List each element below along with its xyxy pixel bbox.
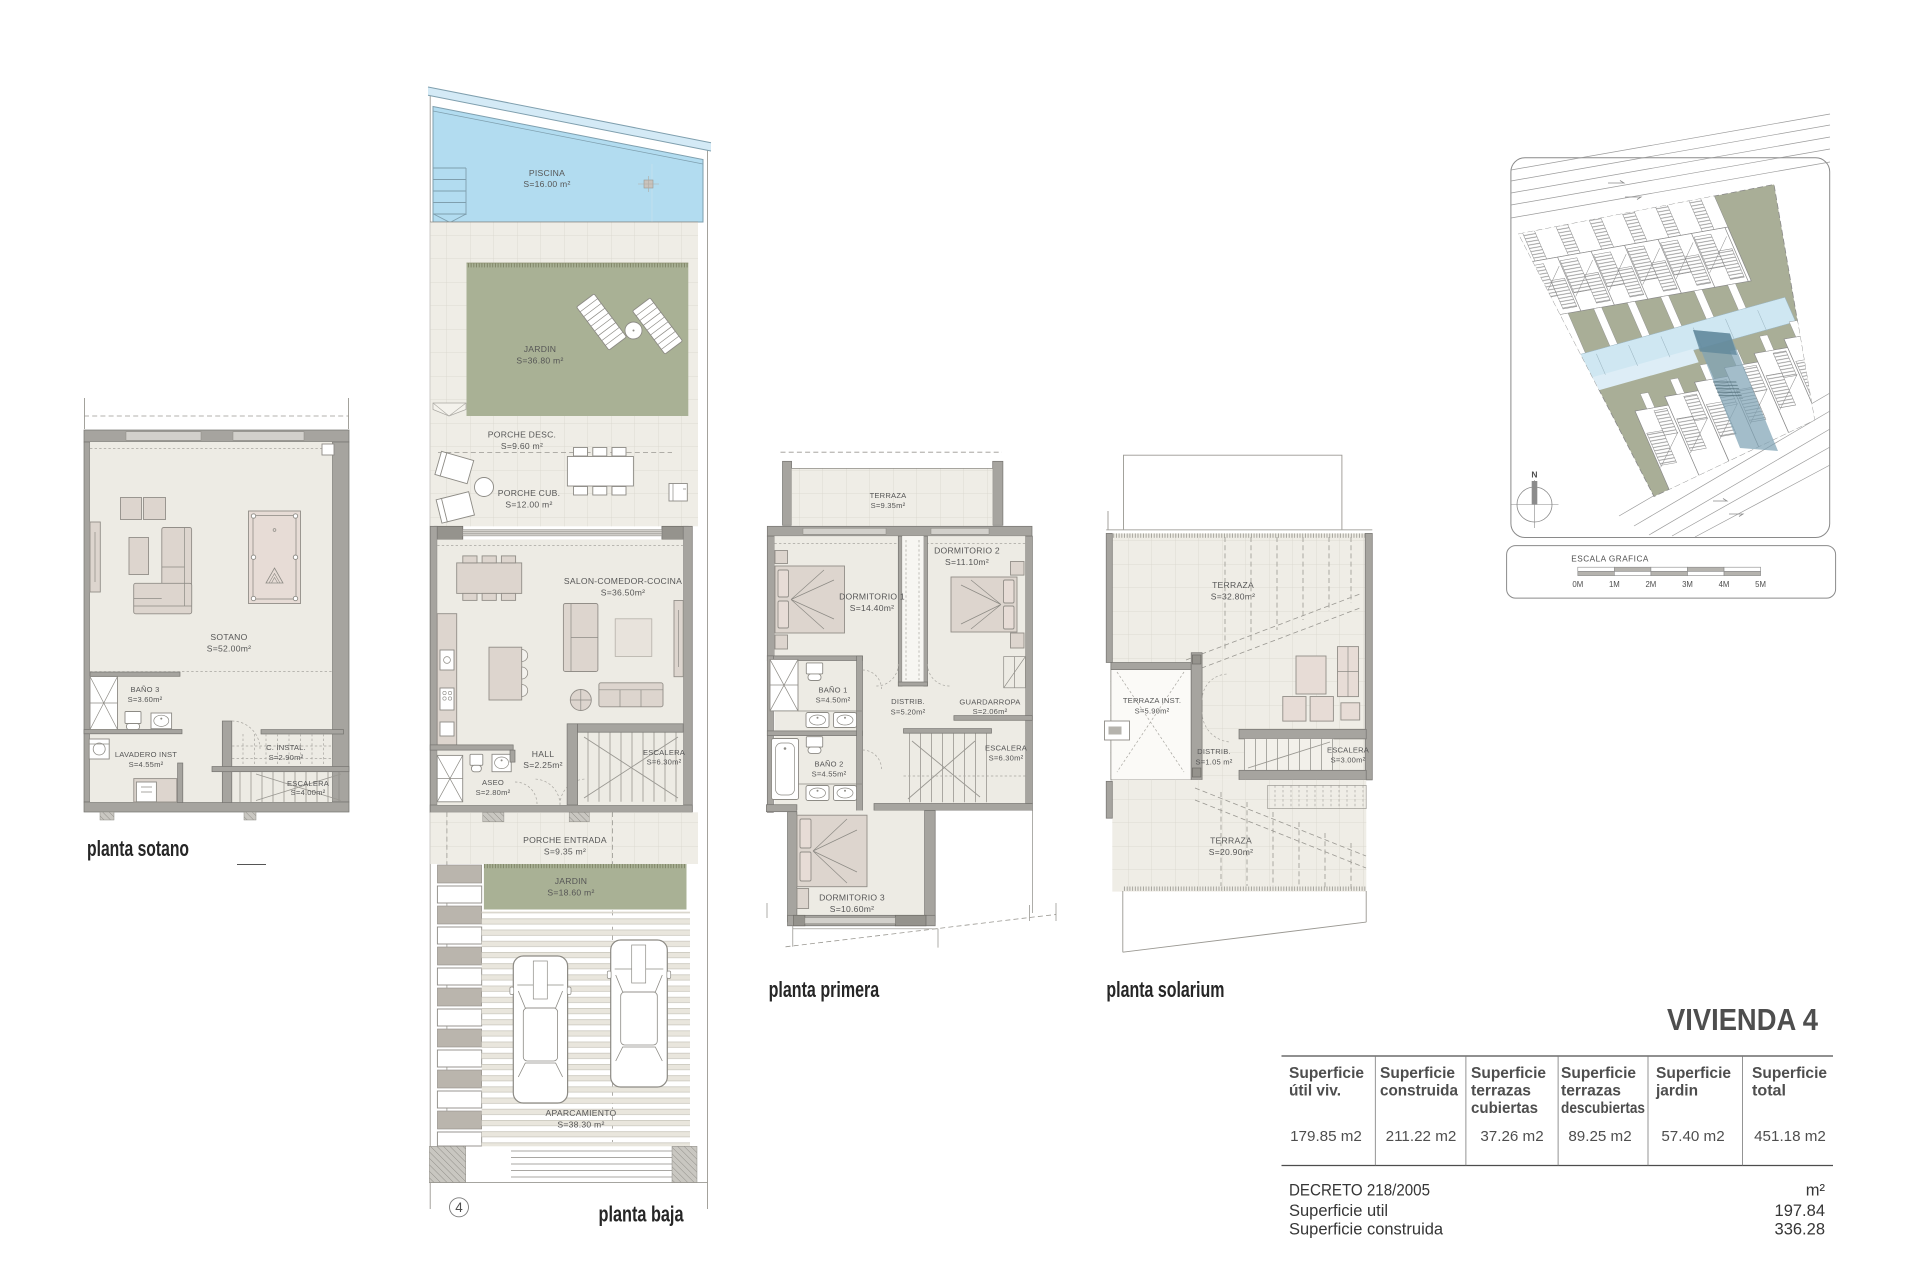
svg-text:S=20.90m²: S=20.90m² xyxy=(1209,847,1254,857)
svg-text:ESCALERA: ESCALERA xyxy=(287,779,330,788)
svg-text:BAÑO 1: BAÑO 1 xyxy=(818,686,847,695)
svg-text:S=4.55m²: S=4.55m² xyxy=(129,760,164,769)
svg-text:Superficie: Superficie xyxy=(1471,1065,1546,1082)
svg-text:1M: 1M xyxy=(1609,580,1620,589)
svg-text:S=9.35 m²: S=9.35 m² xyxy=(544,847,586,857)
svg-text:197.84: 197.84 xyxy=(1775,1202,1825,1220)
svg-text:TERRAZA: TERRAZA xyxy=(870,491,908,500)
svg-text:S=4.55m²: S=4.55m² xyxy=(812,770,847,779)
svg-text:451.18 m2: 451.18 m2 xyxy=(1754,1128,1826,1145)
svg-text:cubiertas: cubiertas xyxy=(1471,1100,1538,1117)
svg-text:Superficie: Superficie xyxy=(1752,1065,1827,1082)
svg-text:S=38.30 m²: S=38.30 m² xyxy=(557,1120,604,1130)
svg-text:TERRAZA: TERRAZA xyxy=(1210,836,1252,846)
svg-text:planta sotano: planta sotano xyxy=(87,836,189,861)
svg-text:Superficie: Superficie xyxy=(1656,1065,1731,1082)
svg-text:Superficie: Superficie xyxy=(1380,1065,1455,1082)
svg-text:planta baja: planta baja xyxy=(599,1202,685,1227)
svg-text:S=5.20m²: S=5.20m² xyxy=(891,708,926,717)
svg-text:37.26 m2: 37.26 m2 xyxy=(1480,1128,1543,1145)
svg-text:PORCHE ENTRADA: PORCHE ENTRADA xyxy=(523,835,607,845)
svg-text:S=2.25m²: S=2.25m² xyxy=(523,760,563,770)
svg-text:S=36.80 m²: S=36.80 m² xyxy=(516,356,563,366)
svg-text:SALON-COMEDOR-COCINA: SALON-COMEDOR-COCINA xyxy=(564,576,682,586)
svg-text:179.85 m2: 179.85 m2 xyxy=(1290,1128,1362,1145)
svg-text:S=3.60m²: S=3.60m² xyxy=(128,695,163,704)
svg-text:S=3.00m²: S=3.00m² xyxy=(1331,756,1366,765)
svg-text:TERRAZA INST.: TERRAZA INST. xyxy=(1123,696,1181,705)
svg-text:terrazas: terrazas xyxy=(1471,1083,1531,1100)
svg-text:S=10.60m²: S=10.60m² xyxy=(830,904,875,914)
svg-text:S=4.00m²: S=4.00m² xyxy=(291,788,326,797)
svg-text:ESCALERA: ESCALERA xyxy=(643,748,686,757)
svg-text:VIVIENDA 4: VIVIENDA 4 xyxy=(1667,1002,1819,1037)
svg-text:ASEO: ASEO xyxy=(482,778,504,787)
svg-text:Superficie: Superficie xyxy=(1561,1065,1636,1082)
svg-text:JARDIN: JARDIN xyxy=(524,344,557,354)
svg-text:PORCHE CUB.: PORCHE CUB. xyxy=(498,488,560,498)
svg-text:planta primera: planta primera xyxy=(769,977,880,1002)
svg-text:SOTANO: SOTANO xyxy=(210,632,247,642)
svg-text:89.25 m2: 89.25 m2 xyxy=(1568,1128,1631,1145)
svg-text:DORMITORIO 1: DORMITORIO 1 xyxy=(839,592,905,602)
svg-text:4: 4 xyxy=(455,1200,463,1215)
svg-text:S=5.90m²: S=5.90m² xyxy=(1135,707,1170,716)
svg-text:construida: construida xyxy=(1380,1083,1458,1100)
svg-text:TERRAZA: TERRAZA xyxy=(1212,580,1254,590)
svg-text:total: total xyxy=(1752,1083,1786,1100)
svg-text:LAVADERO INST: LAVADERO INST xyxy=(115,750,177,759)
svg-text:S=12.00 m²: S=12.00 m² xyxy=(505,500,552,510)
svg-text:DORMITORIO 2: DORMITORIO 2 xyxy=(934,546,1000,556)
svg-text:S=2.80m²: S=2.80m² xyxy=(476,788,511,797)
svg-text:S=36.50m²: S=36.50m² xyxy=(601,588,646,598)
svg-text:4M: 4M xyxy=(1719,580,1730,589)
svg-text:S=1.05 m²: S=1.05 m² xyxy=(1195,758,1232,767)
svg-text:Superficie util: Superficie util xyxy=(1289,1202,1388,1220)
svg-text:S=6.30m²: S=6.30m² xyxy=(647,758,682,767)
svg-text:3M: 3M xyxy=(1682,580,1693,589)
svg-text:PORCHE DESC.: PORCHE DESC. xyxy=(488,430,556,440)
svg-text:S=6.30m²: S=6.30m² xyxy=(989,754,1024,763)
svg-text:Superficie construida: Superficie construida xyxy=(1289,1221,1444,1239)
svg-text:336.28: 336.28 xyxy=(1775,1221,1825,1239)
svg-text:211.22 m2: 211.22 m2 xyxy=(1386,1128,1457,1145)
svg-text:terrazas: terrazas xyxy=(1561,1083,1621,1100)
svg-text:C. INSTAL.: C. INSTAL. xyxy=(266,743,306,752)
svg-text:Superficie: Superficie xyxy=(1289,1065,1364,1082)
svg-text:m²: m² xyxy=(1806,1182,1826,1200)
svg-text:S=18.60 m²: S=18.60 m² xyxy=(547,888,594,898)
svg-text:ESCALA GRAFICA: ESCALA GRAFICA xyxy=(1571,555,1649,564)
svg-text:S=9.60 m²: S=9.60 m² xyxy=(501,441,543,451)
svg-text:descubiertas: descubiertas xyxy=(1561,1100,1645,1117)
svg-text:57.40 m2: 57.40 m2 xyxy=(1661,1128,1724,1145)
svg-text:BAÑO 3: BAÑO 3 xyxy=(130,685,159,694)
svg-text:DISTRIB.: DISTRIB. xyxy=(891,697,925,706)
svg-text:S=11.10m²: S=11.10m² xyxy=(945,557,989,567)
svg-text:S=9.35m²: S=9.35m² xyxy=(871,501,906,510)
svg-text:BAÑO 2: BAÑO 2 xyxy=(814,760,843,769)
svg-text:PISCINA: PISCINA xyxy=(529,168,565,178)
svg-text:S=2.06m²: S=2.06m² xyxy=(973,707,1008,716)
svg-text:S=2.90m²: S=2.90m² xyxy=(269,753,304,762)
svg-text:S=4.50m²: S=4.50m² xyxy=(816,696,851,705)
svg-text:ESCALERA: ESCALERA xyxy=(1327,746,1370,755)
svg-text:2M: 2M xyxy=(1645,580,1656,589)
svg-text:5M: 5M xyxy=(1755,580,1766,589)
svg-text:jardin: jardin xyxy=(1655,1083,1698,1100)
svg-text:S=52.00m²: S=52.00m² xyxy=(207,644,252,654)
svg-text:APARCAMIENTO: APARCAMIENTO xyxy=(546,1108,617,1118)
svg-text:DISTRIB.: DISTRIB. xyxy=(1197,747,1231,756)
svg-text:planta solarium: planta solarium xyxy=(1106,977,1224,1002)
svg-text:0M: 0M xyxy=(1572,580,1583,589)
svg-text:GUARDARROPA: GUARDARROPA xyxy=(959,698,1021,707)
svg-text:DORMITORIO 3: DORMITORIO 3 xyxy=(819,893,885,903)
svg-text:útil viv.: útil viv. xyxy=(1289,1083,1341,1100)
svg-text:DECRETO 218/2005: DECRETO 218/2005 xyxy=(1289,1182,1430,1200)
svg-text:S=16.00 m²: S=16.00 m² xyxy=(523,179,570,189)
svg-text:S=32.80m²: S=32.80m² xyxy=(1211,592,1256,602)
svg-text:S=14.40m²: S=14.40m² xyxy=(850,603,895,613)
svg-text:HALL: HALL xyxy=(532,749,555,759)
svg-text:ESCALERA: ESCALERA xyxy=(985,744,1028,753)
svg-text:JARDIN: JARDIN xyxy=(555,876,588,886)
svg-text:N: N xyxy=(1531,470,1537,480)
